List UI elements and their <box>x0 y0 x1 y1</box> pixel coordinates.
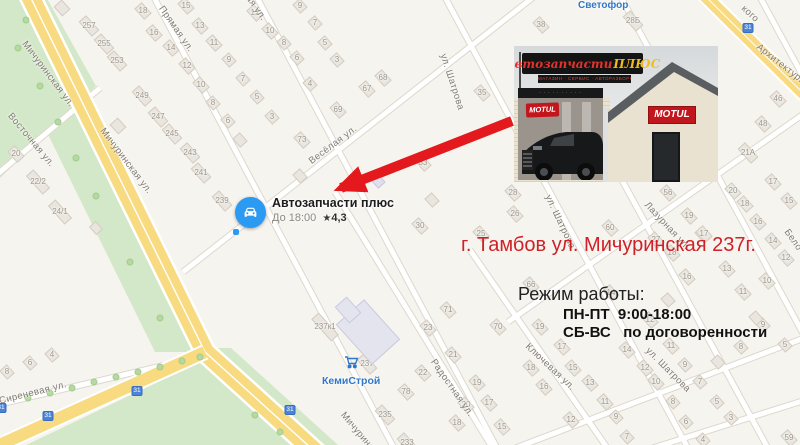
sign-title-red: Автозапчасти <box>514 57 612 71</box>
route-badge: 31 <box>0 403 7 413</box>
black-car <box>518 88 603 180</box>
tree-icon <box>55 119 62 126</box>
map-canvas[interactable]: 25725525324924724524324123922/224/120181… <box>0 0 800 445</box>
house-number: 18 <box>527 364 536 372</box>
house-number: 18 <box>139 7 148 15</box>
house-number: 14 <box>769 237 778 245</box>
house-number: 11 <box>667 342 675 350</box>
schedule-title: Режим работы: <box>518 284 645 305</box>
house-number: 22 <box>419 369 428 377</box>
house-number: 38 <box>537 21 546 29</box>
house-number: 237к1 <box>314 323 335 331</box>
house-number: 13 <box>196 22 205 30</box>
house-number: 5 <box>255 93 259 101</box>
house-number: 6 <box>226 117 230 125</box>
tree-icon <box>69 385 76 392</box>
business-marker[interactable] <box>235 197 266 228</box>
house-number: 21 <box>449 351 458 359</box>
house-number: 48 <box>759 120 768 128</box>
house-number: 15 <box>498 423 507 431</box>
marker-hours: До 18:00 <box>272 212 316 224</box>
house-number: 28Б <box>626 17 640 25</box>
tree-icon <box>277 429 284 436</box>
shop-door <box>652 132 680 182</box>
house-number: 30 <box>416 222 425 230</box>
house-number: 33 <box>419 159 428 167</box>
house-number: 15 <box>182 2 191 10</box>
house-number: 257 <box>82 22 95 30</box>
marker-title: Автозапчасти плюс <box>272 196 394 210</box>
house-number: 20 <box>12 150 21 158</box>
marker-label: Автозапчасти плюс До 18:00 ★4,3 <box>272 196 394 224</box>
marker-rating: 4,3 <box>331 212 346 224</box>
building <box>424 192 439 208</box>
house-number: 8 <box>211 99 215 107</box>
tree-icon <box>93 193 100 200</box>
tree-icon <box>113 374 120 381</box>
house-number: 18 <box>453 419 462 427</box>
car-icon <box>241 203 260 222</box>
house-number: 12 <box>641 364 650 372</box>
street-label: Мичуринская ул. <box>20 39 77 109</box>
house-number: 15 <box>785 197 794 205</box>
house-number: 7 <box>625 433 629 441</box>
storefront-sign: Автозапчасти ПЛЮС <box>522 53 643 74</box>
house-number: 18 <box>741 200 750 208</box>
house-number: 17 <box>485 399 494 407</box>
street-label: Радостная ул. <box>428 357 476 419</box>
schedule-weekend: СБ-ВС по договоренности <box>563 324 767 341</box>
house-number: 249 <box>135 92 148 100</box>
tree-icon <box>197 354 204 361</box>
building <box>54 0 71 17</box>
house-number: 4 <box>308 80 312 88</box>
tree-icon <box>135 369 142 376</box>
house-number: 19 <box>473 379 482 387</box>
house-number: 14 <box>167 44 176 52</box>
house-number: 3 <box>270 113 274 121</box>
house-number: 241 <box>194 169 207 177</box>
route-badge: 31 <box>43 411 54 421</box>
house-number: 11 <box>210 39 218 47</box>
house-number: 71 <box>444 306 453 314</box>
house-number: 9 <box>614 413 618 421</box>
house-number: 19 <box>685 212 694 220</box>
house-number: 239 <box>215 197 228 205</box>
house-number: 17 <box>769 178 778 186</box>
house-number: 5 <box>323 39 327 47</box>
street-label: ул. Шатрова <box>438 52 467 111</box>
tree-icon <box>127 259 134 266</box>
sign-title-yellow: ПЛЮС <box>613 57 660 71</box>
tree-icon <box>179 358 186 365</box>
building <box>710 354 725 370</box>
house-number: 5 <box>715 398 719 406</box>
house-number: 253 <box>110 57 123 65</box>
house-number: 8 <box>5 368 9 376</box>
house-number: 3 <box>335 56 339 64</box>
street-label: Восточная ул. <box>5 111 56 169</box>
house-number: 6 <box>684 418 688 426</box>
tree-icon <box>157 315 164 322</box>
house-number: 78 <box>402 388 411 396</box>
building <box>110 117 127 134</box>
route-badge: 31 <box>743 23 754 33</box>
cart-icon <box>344 355 359 369</box>
address-text: г. Тамбов ул. Мичуринская 237г. <box>461 234 756 257</box>
house-number: 8 <box>282 39 286 47</box>
route-badge: 31 <box>285 405 296 415</box>
house-number: 16 <box>683 273 692 281</box>
building <box>292 168 307 184</box>
house-number: 11 <box>601 398 609 406</box>
house-number: 9 <box>298 2 302 10</box>
house-number: 7 <box>241 75 245 83</box>
tree-icon <box>73 155 80 162</box>
house-number: 19 <box>536 323 545 331</box>
house-number: 16 <box>540 383 549 391</box>
house-number: 13 <box>723 265 732 273</box>
house-number: 4 <box>50 351 54 359</box>
tree-icon <box>23 17 30 24</box>
house-number: 16 <box>754 218 763 226</box>
house-number: 20 <box>729 187 738 195</box>
house-number: 24/1 <box>52 208 68 216</box>
street-label: Весёлая ул. <box>307 123 359 166</box>
tree-icon <box>37 83 44 90</box>
house-number: 17 <box>558 343 567 351</box>
house-number: 10 <box>763 277 772 285</box>
poi-kemistroy[interactable]: КемиСтрой <box>322 355 380 387</box>
tree-icon <box>252 412 259 419</box>
house-number: 60 <box>606 224 615 232</box>
house-number: 12 <box>782 254 791 262</box>
house-number: 235 <box>378 411 391 419</box>
house-number: 35 <box>478 89 487 97</box>
motul-logo-wall: MOTUL <box>648 106 696 124</box>
house-number: 4 <box>701 436 705 444</box>
house-number: 12 <box>183 62 192 70</box>
house-number: 243 <box>183 149 196 157</box>
marker-location-dot <box>233 229 239 235</box>
house-number: 10 <box>652 378 661 386</box>
building <box>89 221 103 235</box>
photo-inset: Автозапчасти ПЛЮС МАГАЗИН · СЕРВИС · АВТ… <box>514 46 718 182</box>
house-number: 14 <box>623 346 632 354</box>
house-number: 5 <box>783 341 787 349</box>
house-number: 11 <box>739 288 747 296</box>
house-number: 70 <box>494 323 503 331</box>
house-number: 6 <box>28 359 32 367</box>
house-number: 9 <box>683 361 687 369</box>
schedule-weekdays: ПН-ПТ 9:00-18:00 <box>563 306 691 323</box>
house-number: 7 <box>313 19 317 27</box>
advert-banner: · · · · · · · · · · MOTUL <box>518 88 603 180</box>
house-number: 15 <box>569 364 578 372</box>
house-number: 3 <box>729 414 733 422</box>
house-number: 255 <box>97 40 110 48</box>
house-number: 247 <box>151 113 164 121</box>
house-number: 59 <box>785 434 794 442</box>
street-label: Сиреневая ул. <box>0 379 68 406</box>
house-number: 9 <box>227 56 231 64</box>
house-number: 68 <box>379 74 388 82</box>
route-badge: 31 <box>132 386 143 396</box>
house-number: 10 <box>266 27 275 35</box>
tree-icon <box>91 379 98 386</box>
house-number: 21А <box>741 149 755 157</box>
house-number: 46 <box>774 95 783 103</box>
house-number: 67 <box>363 85 372 93</box>
street-label: кого <box>739 3 761 24</box>
house-number: 28 <box>509 189 518 197</box>
house-number: 23 <box>424 324 433 332</box>
building <box>370 173 385 189</box>
house-number: 7 <box>698 378 702 386</box>
house-number: 233 <box>400 439 413 445</box>
building <box>232 132 247 148</box>
house-number: 8 <box>671 398 675 406</box>
house-number: 22/2 <box>30 178 46 186</box>
house-number: 69 <box>334 106 343 114</box>
house-number: 73 <box>298 136 307 144</box>
house-number: 26 <box>511 210 520 218</box>
house-number: 10 <box>197 81 206 89</box>
tree-icon <box>157 364 164 371</box>
poi-svetofor[interactable]: Светофор <box>578 0 628 11</box>
sign-subtitle: МАГАЗИН · СЕРВИС · АВТОРАЗБОРКА <box>538 75 631 83</box>
street-label: Мичуринская ул. <box>98 126 155 196</box>
house-number: 12 <box>567 416 576 424</box>
house-number: 245 <box>165 130 178 138</box>
house-number: 16 <box>150 29 159 37</box>
house-number: 8 <box>739 343 743 351</box>
house-number: 13 <box>586 379 595 387</box>
house-number: 6 <box>295 54 299 62</box>
house-number: 56 <box>664 189 673 197</box>
marker-subtitle: До 18:00 ★4,3 <box>272 212 394 224</box>
